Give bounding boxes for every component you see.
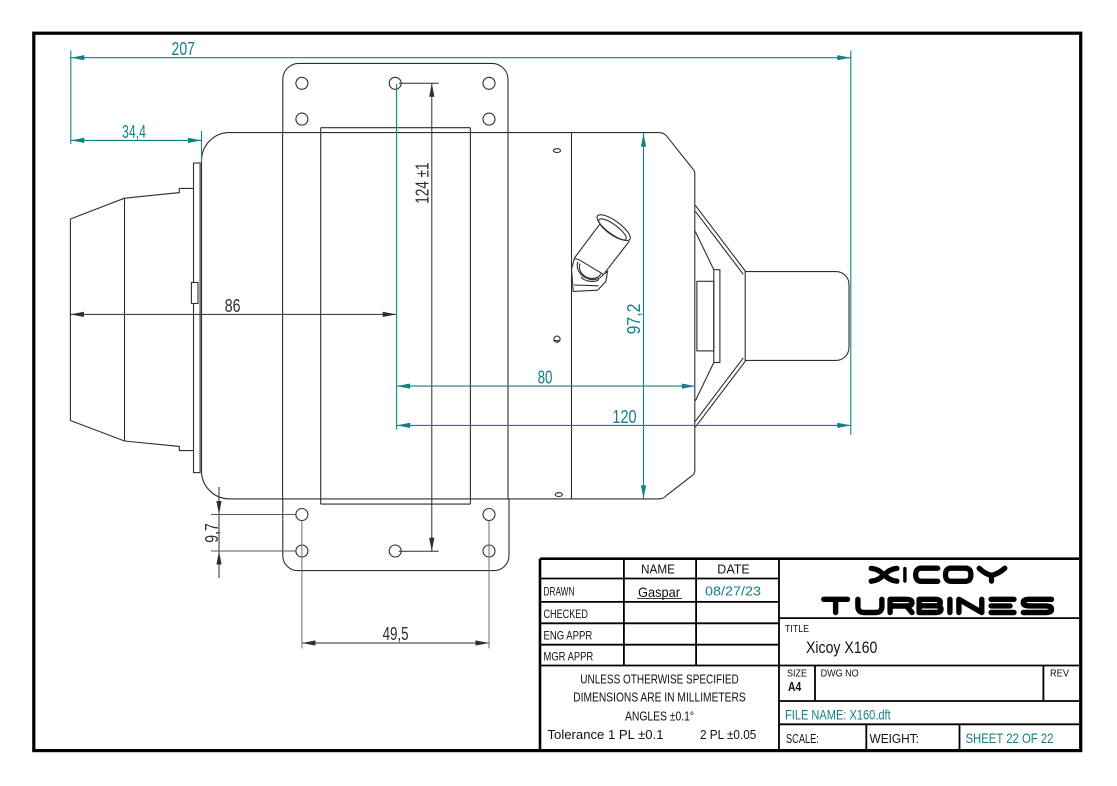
svg-text:207: 207 (172, 39, 195, 59)
svg-text:DRAWN: DRAWN (544, 586, 575, 599)
svg-text:Gaspar: Gaspar (638, 585, 681, 600)
svg-text:WEIGHT:: WEIGHT: (870, 732, 919, 746)
svg-text:ENG APPR: ENG APPR (544, 630, 593, 643)
svg-text:TITLE: TITLE (785, 623, 809, 635)
svg-text:DIMENSIONS ARE IN MILLIMETERS: DIMENSIONS ARE IN MILLIMETERS (573, 692, 746, 705)
svg-text:9,7: 9,7 (202, 523, 222, 542)
svg-text:08/27/23: 08/27/23 (705, 584, 761, 598)
svg-text:Tolerance 1 PL ±0.1: Tolerance 1 PL ±0.1 (548, 727, 664, 742)
svg-text:UNLESS OTHERWISE SPECIFIED: UNLESS OTHERWISE SPECIFIED (580, 674, 738, 687)
svg-text:SHEET 22 OF 22: SHEET 22 OF 22 (966, 731, 1054, 746)
svg-text:DWG NO: DWG NO (821, 668, 859, 680)
svg-text:34,4: 34,4 (122, 122, 146, 142)
svg-text:49,5: 49,5 (383, 624, 409, 645)
svg-text:A4: A4 (788, 680, 802, 694)
svg-text:SCALE:: SCALE: (786, 733, 819, 747)
svg-text:120: 120 (612, 406, 636, 427)
svg-text:SIZE: SIZE (787, 668, 807, 680)
svg-text:97,2: 97,2 (623, 304, 645, 335)
svg-text:MGR APPR: MGR APPR (544, 651, 594, 664)
svg-text:80: 80 (538, 367, 553, 388)
svg-text:86: 86 (225, 296, 241, 316)
svg-text:Xicoy X160: Xicoy X160 (806, 639, 878, 657)
svg-text:NAME: NAME (641, 562, 675, 576)
svg-text:124 ±1: 124 ±1 (413, 162, 434, 203)
svg-text:FILE NAME: X160.dft: FILE NAME: X160.dft (785, 707, 891, 722)
svg-text:CHECKED: CHECKED (544, 609, 588, 621)
svg-text:2 PL ±0.05: 2 PL ±0.05 (700, 727, 757, 741)
svg-text:DATE: DATE (717, 563, 749, 577)
svg-text:ANGLES ±0.1°: ANGLES ±0.1° (625, 711, 694, 724)
svg-text:REV: REV (1050, 668, 1069, 680)
